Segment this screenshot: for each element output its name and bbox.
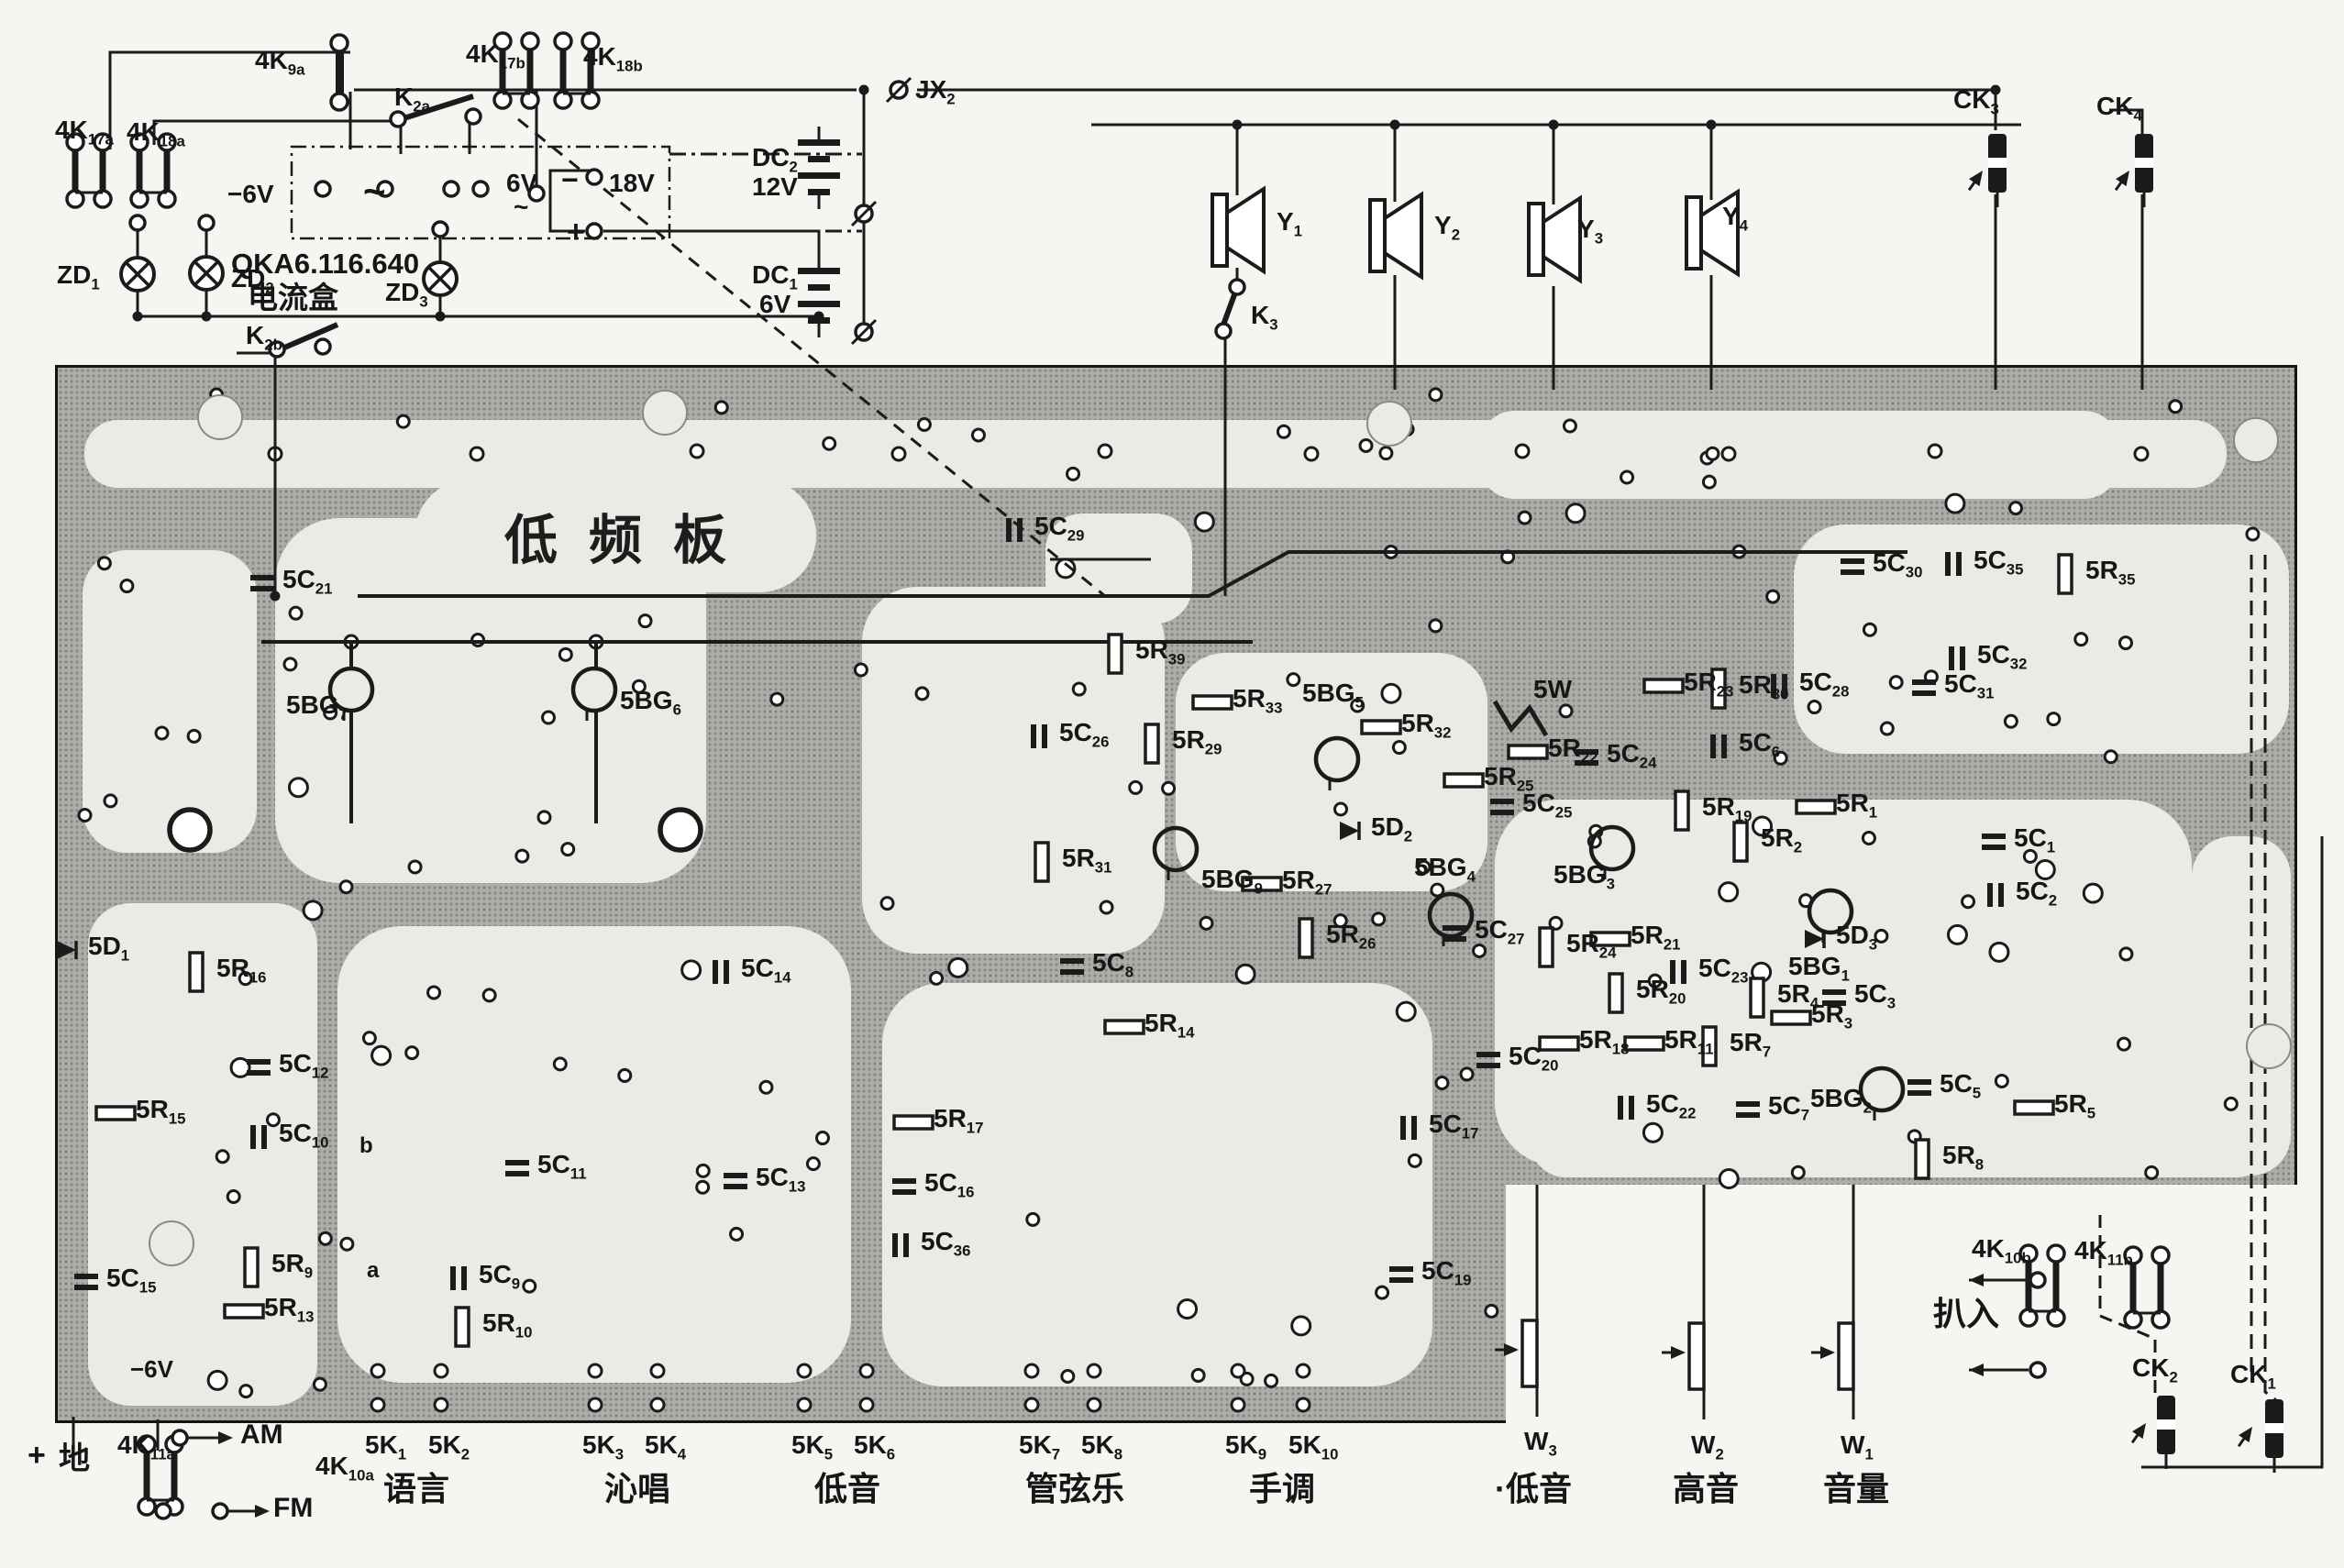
capacitor-icon	[1956, 552, 1962, 576]
component-label: CK1	[2230, 1362, 2276, 1392]
component-label: 4K17b	[466, 41, 525, 72]
connector-bar	[164, 149, 171, 193]
capacitor-icon	[1907, 1090, 1931, 1096]
solder-pad	[1025, 1398, 1038, 1411]
solder-pad	[1130, 781, 1142, 793]
solder-pad	[918, 418, 930, 430]
transistor-icon	[573, 668, 615, 711]
component-label: CK2	[2132, 1355, 2178, 1386]
component-label: 5R10	[482, 1310, 532, 1341]
solder-pad	[619, 1069, 631, 1081]
component-label: 4K9a	[255, 48, 304, 78]
component-label: DC2	[752, 145, 798, 175]
solder-pad	[1621, 471, 1633, 483]
capacitor-icon	[1822, 989, 1846, 995]
contact-circle	[156, 1504, 171, 1518]
component-label: 5R39	[1135, 637, 1185, 668]
capacitor-icon	[74, 1274, 98, 1279]
solder-pad	[1277, 425, 1289, 437]
solder-pad	[1380, 447, 1392, 459]
solder-pad	[188, 730, 200, 742]
junction-dot	[859, 85, 869, 95]
component-label: FM	[273, 1495, 313, 1522]
solder-pad	[1073, 683, 1085, 695]
junction-dot	[436, 312, 446, 322]
solder-pad	[1393, 742, 1405, 754]
component-label: K2a	[394, 84, 430, 115]
solder-pad	[1890, 677, 1902, 689]
solder-pad	[1360, 439, 1372, 451]
arrow-icon	[2110, 167, 2134, 193]
solder-pad	[1703, 476, 1715, 488]
battery-plate	[798, 139, 840, 146]
solder-pad	[483, 989, 495, 1001]
solder-pad	[435, 1364, 448, 1377]
capacitor-icon	[261, 1125, 267, 1149]
solder-pad	[697, 1165, 709, 1176]
solder-pad	[949, 958, 967, 977]
resistor-icon	[1916, 1140, 1929, 1178]
solder-pad	[290, 607, 302, 619]
connector-bar	[137, 149, 143, 193]
solder-pad	[208, 1371, 227, 1389]
solder-pad	[798, 1398, 811, 1411]
component-label: ZD3	[385, 280, 428, 310]
arrow-icon	[1811, 1346, 1835, 1359]
solder-pad	[1297, 1364, 1310, 1377]
solder-pad	[1430, 620, 1442, 632]
capacitor-icon	[903, 1233, 909, 1257]
mounting-hole	[2234, 418, 2278, 462]
wire	[2265, 555, 2280, 1403]
battery-plate	[798, 172, 840, 179]
component-label: 5C31	[1944, 671, 1994, 701]
component-label: 5C9	[479, 1262, 520, 1292]
capacitor-icon	[724, 1173, 747, 1178]
solder-pad	[1929, 445, 1941, 458]
capacitor-icon	[1960, 646, 1965, 670]
connector-bar	[2053, 1260, 2060, 1311]
component-label: K3	[1251, 303, 1278, 333]
connector-bar	[2130, 1262, 2137, 1313]
solder-pad	[1767, 591, 1779, 602]
arrow-icon	[1495, 1343, 1519, 1356]
capacitor-icon	[1710, 734, 1716, 758]
contact-circle	[587, 224, 602, 238]
solder-pad	[1195, 513, 1213, 531]
component-label: 5C16	[924, 1170, 974, 1200]
component-label: 5C14	[741, 955, 791, 986]
capacitor-icon	[247, 1070, 271, 1076]
capacitor-icon	[1411, 1116, 1417, 1140]
large-pad	[170, 810, 210, 850]
solder-pad	[1486, 1305, 1498, 1317]
solder-pad	[816, 1132, 828, 1144]
solder-pad	[1062, 1371, 1074, 1383]
solder-pad	[1288, 674, 1299, 686]
speaker-icon	[1686, 197, 1701, 269]
connector-pin	[2048, 1245, 2064, 1262]
component-label: 5C3	[1854, 981, 1896, 1011]
component-label: 5K4	[645, 1432, 686, 1463]
jack-icon	[2265, 1423, 2283, 1433]
solder-pad	[1178, 1299, 1197, 1318]
capacitor-icon	[1476, 1063, 1500, 1068]
solder-pad	[105, 795, 116, 807]
component-label: 5R30	[1739, 672, 1788, 702]
diode-icon	[57, 941, 76, 959]
component-label: 5C30	[1873, 550, 1922, 580]
resistor-icon	[1105, 1021, 1144, 1033]
solder-pad	[470, 447, 483, 460]
component-label: 5R2	[1761, 825, 1802, 856]
arrow-icon	[1969, 1364, 1993, 1376]
component-label: 5R13	[264, 1295, 314, 1325]
capacitor-icon	[1031, 724, 1036, 748]
speaker-icon	[1385, 194, 1421, 277]
solder-pad	[267, 1114, 279, 1126]
solder-pad	[2084, 884, 2102, 902]
solder-pad	[1643, 1123, 1662, 1142]
capacitor-icon	[1400, 1116, 1406, 1140]
contact-circle	[130, 215, 145, 230]
contact-circle	[2030, 1273, 2045, 1287]
speaker-icon	[1212, 194, 1227, 266]
solder-pad	[2119, 637, 2131, 649]
component-label: 5R29	[1172, 727, 1222, 757]
component-label: 5R11	[1664, 1027, 1714, 1057]
solder-pad	[1297, 1398, 1310, 1411]
resistor-icon	[1109, 635, 1122, 673]
resistor-icon	[2015, 1101, 2053, 1114]
solder-pad	[1236, 965, 1255, 983]
capacitor-icon	[1443, 936, 1466, 942]
wire	[237, 353, 275, 596]
solder-pad	[2135, 447, 2148, 460]
component-label: 5C23	[1698, 955, 1748, 986]
solder-pad	[435, 1398, 448, 1411]
component-label: 低音	[814, 1473, 880, 1506]
capacitor-icon	[1042, 724, 1047, 748]
solder-pad	[1099, 445, 1111, 458]
component-label: 5C21	[282, 567, 332, 597]
solder-pad	[731, 1228, 743, 1240]
pcb-diagram-page: 低频板 4K9a4K17b4K18bK2a4K17a4K18a−6V~6V~−1…	[0, 0, 2344, 1568]
solder-pad	[1461, 1068, 1473, 1080]
solder-pad	[284, 658, 296, 670]
capacitor-icon	[1060, 969, 1084, 975]
solder-pad	[1232, 1364, 1244, 1377]
resistor-icon	[1509, 745, 1547, 758]
capacitor-icon	[1721, 734, 1727, 758]
solder-pad	[1100, 901, 1112, 913]
component-label: 5R23	[1684, 669, 1733, 700]
component-label: 18V	[609, 171, 655, 196]
solder-pad	[807, 1158, 819, 1170]
resistor-icon	[1362, 721, 1400, 734]
junction-dot	[1233, 120, 1243, 130]
contact-circle	[199, 215, 214, 230]
solder-pad	[1722, 447, 1735, 460]
component-label: 5R33	[1233, 686, 1282, 716]
resistor-icon	[1772, 1011, 1810, 1024]
capacitor-icon	[1841, 569, 1864, 575]
solder-pad	[1948, 925, 1966, 944]
solder-pad	[1088, 1398, 1100, 1411]
solder-pad	[855, 664, 867, 676]
capacitor-icon	[1912, 690, 1936, 696]
solder-pad	[1990, 943, 2008, 961]
contact-circle	[1230, 280, 1244, 294]
contact-circle	[587, 170, 602, 184]
component-label: 5BG5	[1302, 680, 1364, 711]
component-label: CK4	[2096, 94, 2142, 124]
solder-pad	[216, 1151, 228, 1163]
component-label: W3	[1524, 1429, 1557, 1459]
component-label: 6V	[759, 292, 791, 317]
solder-pad	[771, 693, 783, 705]
junction-dot	[202, 312, 212, 322]
component-label: 5C29	[1034, 513, 1084, 544]
capacitor-icon	[505, 1171, 529, 1176]
solder-pad	[240, 1386, 252, 1397]
component-label: 5R16	[216, 955, 266, 986]
component-label: 5C36	[921, 1229, 970, 1259]
solder-pad	[304, 901, 322, 920]
solder-pad	[1719, 883, 1738, 901]
capacitor-icon	[1949, 646, 1954, 670]
solder-pad	[406, 1047, 418, 1059]
resistor-icon	[1644, 679, 1683, 692]
solder-pad	[559, 648, 571, 660]
component-label: 4K17a	[55, 117, 114, 148]
solder-pad	[562, 844, 574, 856]
capacitor-icon	[724, 1184, 747, 1189]
solder-pad	[340, 881, 352, 893]
solder-pad	[2120, 948, 2132, 960]
arrow-icon	[1969, 1274, 1993, 1286]
solder-pad	[1946, 494, 1964, 513]
component-label: 5BG6	[620, 688, 681, 718]
solder-pad	[314, 1378, 326, 1390]
resistor-icon	[1540, 928, 1553, 966]
solder-pad	[1292, 1317, 1310, 1335]
component-label: 5R17	[934, 1106, 983, 1136]
component-label: 5C35	[1974, 547, 2023, 578]
solder-pad	[691, 445, 703, 458]
resistor-icon	[1609, 974, 1622, 1012]
solder-pad	[651, 1398, 664, 1411]
arrow-icon	[246, 1505, 270, 1518]
junction-dot	[1707, 120, 1717, 130]
capacitor-icon	[461, 1266, 467, 1290]
wire	[1495, 701, 1546, 735]
component-label: 5C32	[1977, 642, 2027, 672]
component-label: Y2	[1434, 213, 1460, 243]
component-label: ~	[363, 172, 386, 211]
connector-pin	[2152, 1247, 2169, 1264]
solder-pad	[1382, 684, 1400, 702]
component-label: 音量	[1823, 1473, 1889, 1506]
component-label: 5D1	[88, 933, 129, 964]
solder-pad	[1564, 420, 1576, 432]
component-label: 5C24	[1607, 741, 1656, 771]
junction-dot	[1549, 120, 1559, 130]
capacitor-icon	[1629, 1096, 1634, 1120]
capacitor-icon	[724, 960, 729, 984]
potentiometer-icon	[1839, 1323, 1853, 1389]
component-label: ZD1	[57, 262, 100, 293]
component-label: 沁唱	[604, 1473, 670, 1506]
solder-pad	[227, 1190, 239, 1202]
component-label: 地	[59, 1443, 90, 1474]
arrow-icon	[2233, 1423, 2257, 1450]
component-label: 管弦乐	[1025, 1473, 1124, 1506]
component-label: 5R7	[1730, 1030, 1771, 1060]
capacitor-icon	[1841, 558, 1864, 564]
component-label: 5R32	[1401, 711, 1451, 741]
component-label: 5C20	[1509, 1043, 1558, 1074]
mounting-hole	[2247, 1024, 2291, 1068]
capacitor-icon	[1912, 679, 1936, 685]
contact-circle	[213, 1504, 227, 1518]
component-label: 5K5	[791, 1432, 833, 1463]
component-label: 12V	[752, 174, 798, 200]
solder-pad	[1996, 1075, 2007, 1087]
solder-pad	[1397, 1002, 1415, 1021]
component-label: a	[367, 1260, 379, 1282]
solder-pad	[1560, 705, 1572, 717]
jack-icon	[1988, 158, 2007, 168]
capacitor-icon	[892, 1178, 916, 1184]
component-label: 5R19	[1702, 794, 1752, 824]
connector-pin	[331, 35, 348, 51]
component-label: 5C13	[756, 1165, 805, 1195]
solder-pad	[1519, 512, 1531, 524]
capacitor-icon	[250, 586, 274, 591]
component-label: 5C19	[1421, 1258, 1471, 1288]
potentiometer-icon	[1522, 1320, 1537, 1386]
component-label: 5K9	[1225, 1432, 1266, 1463]
solder-pad	[1566, 504, 1585, 523]
solder-pad	[1027, 1213, 1039, 1225]
component-label: 5W	[1533, 677, 1572, 702]
component-label: b	[359, 1135, 373, 1157]
component-label: 5C26	[1059, 720, 1109, 750]
component-label: 5C27	[1475, 917, 1524, 947]
resistor-icon	[1797, 801, 1835, 813]
solder-pad	[372, 1046, 391, 1065]
capacitor-icon	[250, 575, 274, 580]
arrow-icon	[209, 1431, 233, 1444]
solder-pad	[682, 961, 701, 979]
speaker-icon	[1227, 189, 1264, 271]
component-label: 5R20	[1636, 977, 1686, 1007]
capacitor-icon	[1006, 518, 1012, 542]
contact-circle	[2030, 1363, 2045, 1377]
resistor-icon	[1193, 696, 1232, 709]
solder-pad	[651, 1364, 664, 1377]
component-label: 5C17	[1429, 1111, 1478, 1142]
junction-dot	[271, 591, 281, 602]
solder-pad	[1025, 1364, 1038, 1377]
jack-icon	[2135, 158, 2153, 168]
solder-pad	[2048, 713, 2060, 725]
component-label: 5R15	[136, 1097, 185, 1127]
solder-pad	[1266, 1375, 1277, 1386]
solder-pad	[697, 1181, 709, 1193]
mounting-hole	[643, 391, 687, 435]
capacitor-icon	[1982, 845, 2006, 850]
component-label: W2	[1691, 1432, 1724, 1463]
solder-pad	[543, 712, 555, 723]
capacitor-icon	[892, 1189, 916, 1195]
solder-pad	[639, 615, 651, 627]
solder-pad	[916, 688, 928, 700]
solder-pad	[1232, 1398, 1244, 1411]
connector-bar	[560, 48, 567, 94]
resistor-icon	[1299, 919, 1312, 957]
solder-pad	[397, 415, 409, 427]
component-label: 4K18a	[127, 119, 185, 149]
component-label: 5BG9	[1201, 867, 1263, 897]
component-label: −6V	[130, 1357, 173, 1381]
solder-pad	[472, 634, 484, 646]
capacitor-icon	[1389, 1266, 1413, 1272]
component-label: 5BG3	[1553, 862, 1615, 892]
resistor-icon	[1625, 1037, 1664, 1050]
capacitor-icon	[1945, 552, 1951, 576]
component-label: K2b	[246, 323, 282, 353]
component-label: 5C25	[1522, 790, 1572, 821]
battery-plate	[798, 301, 840, 307]
solder-pad	[760, 1081, 772, 1093]
connector-bar	[72, 149, 79, 193]
solder-pad	[1863, 624, 1875, 635]
capacitor-icon	[1490, 810, 1514, 815]
contact-circle	[315, 182, 330, 196]
component-label: 5C15	[106, 1265, 156, 1296]
component-label: 5C12	[279, 1051, 328, 1081]
transistor-icon	[1316, 738, 1358, 780]
solder-pad	[121, 580, 133, 592]
solder-pad	[715, 402, 727, 414]
component-label: 5R26	[1326, 922, 1376, 952]
solder-pad	[1067, 468, 1079, 480]
solder-pad	[860, 1364, 873, 1377]
component-label: 5R31	[1062, 845, 1111, 876]
capacitor-icon	[1736, 1112, 1760, 1118]
solder-pad	[2105, 751, 2117, 763]
component-label: 5R3	[1811, 1001, 1852, 1032]
solder-pad	[1516, 445, 1529, 458]
capacitor-icon	[1476, 1052, 1500, 1057]
component-label: 5R35	[2085, 558, 2135, 588]
solder-pad	[554, 1058, 566, 1070]
component-label: 5C11	[537, 1152, 587, 1182]
component-label: 5BG4	[1414, 855, 1476, 885]
component-label: 5C1	[2014, 825, 2055, 856]
contact-circle	[466, 109, 481, 124]
solder-pad	[860, 1398, 873, 1411]
solder-pad	[1719, 1169, 1738, 1187]
capacitor-icon	[713, 960, 718, 984]
capacitor-icon	[1389, 1277, 1413, 1283]
resistor-icon	[2059, 555, 2072, 593]
component-label: 5C7	[1768, 1093, 1809, 1123]
capacitor-icon	[1490, 799, 1514, 804]
component-label: 4K18b	[583, 44, 643, 74]
